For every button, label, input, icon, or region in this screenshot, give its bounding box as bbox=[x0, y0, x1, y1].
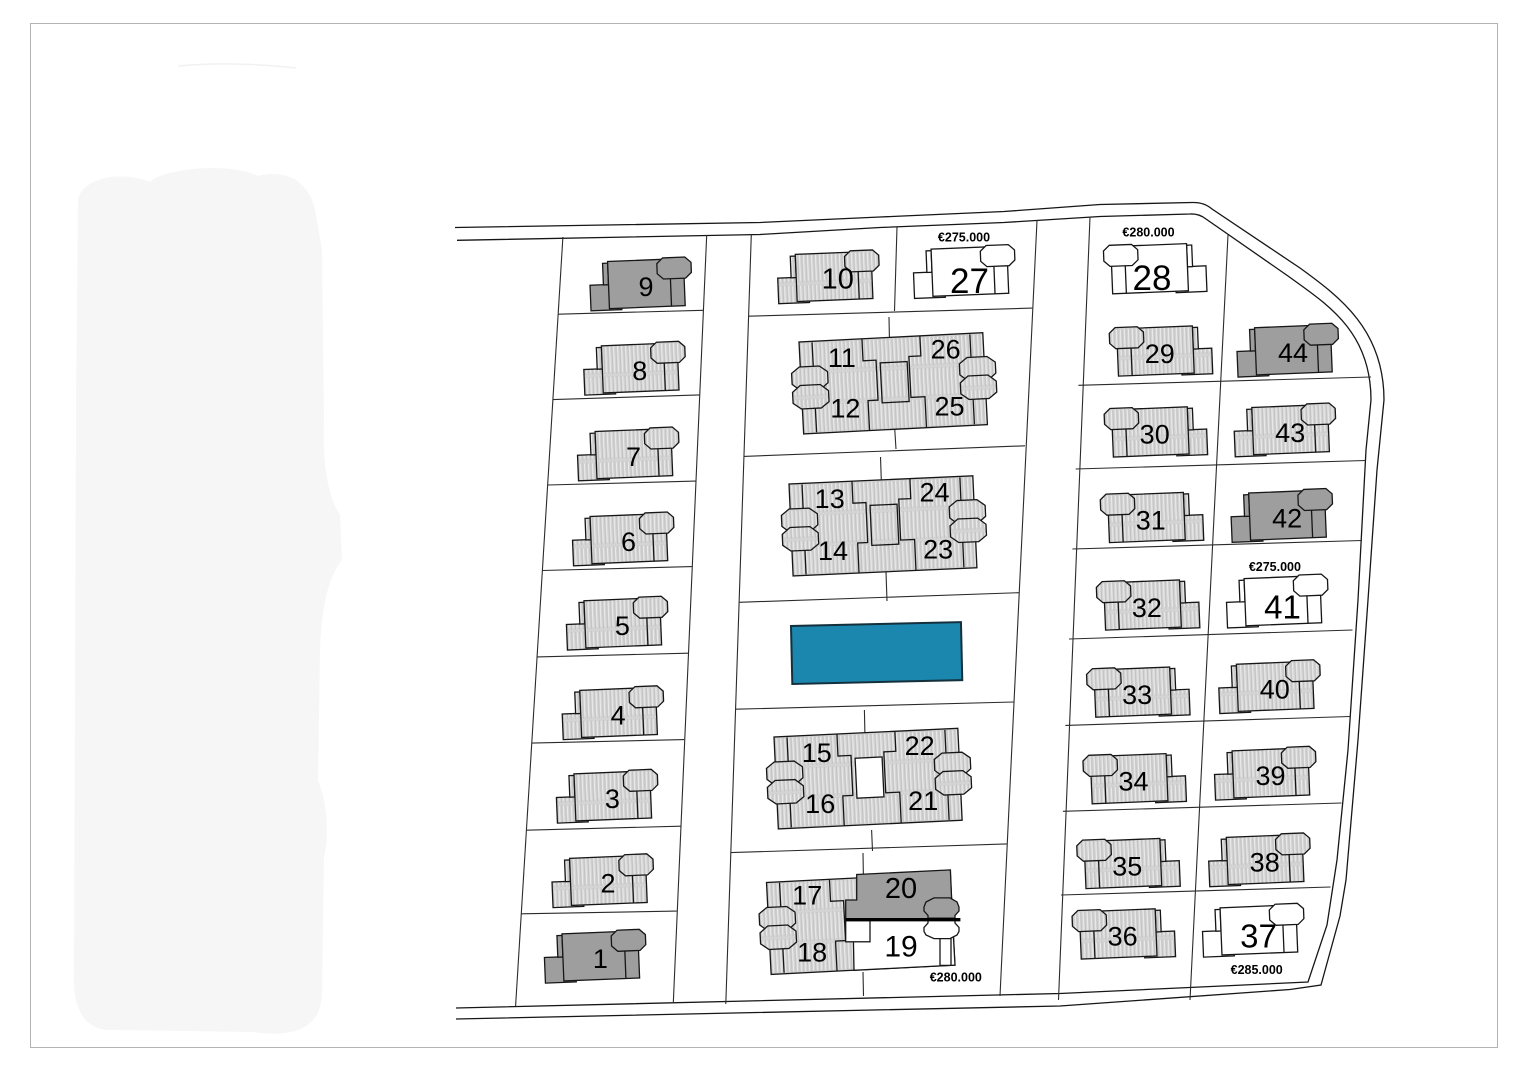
svg-text:22: 22 bbox=[905, 731, 935, 761]
svg-text:15: 15 bbox=[802, 738, 832, 768]
svg-text:16: 16 bbox=[805, 789, 835, 819]
svg-text:€275.000: €275.000 bbox=[938, 231, 990, 245]
svg-text:38: 38 bbox=[1250, 848, 1280, 878]
svg-text:39: 39 bbox=[1255, 761, 1285, 791]
svg-text:42: 42 bbox=[1272, 503, 1302, 533]
svg-text:€275.000: €275.000 bbox=[1249, 560, 1301, 574]
svg-text:12: 12 bbox=[830, 394, 860, 424]
svg-text:29: 29 bbox=[1145, 339, 1175, 369]
svg-text:20: 20 bbox=[885, 873, 917, 905]
svg-text:10: 10 bbox=[822, 264, 854, 296]
svg-text:18: 18 bbox=[797, 937, 827, 967]
svg-text:8: 8 bbox=[632, 356, 647, 386]
svg-text:24: 24 bbox=[919, 478, 949, 508]
svg-text:14: 14 bbox=[818, 536, 848, 566]
svg-text:26: 26 bbox=[931, 335, 961, 365]
svg-text:9: 9 bbox=[638, 272, 653, 302]
svg-text:36: 36 bbox=[1108, 922, 1138, 952]
svg-text:17: 17 bbox=[792, 881, 822, 911]
svg-text:44: 44 bbox=[1278, 338, 1308, 368]
svg-text:3: 3 bbox=[605, 784, 620, 814]
svg-text:32: 32 bbox=[1132, 593, 1162, 623]
svg-text:€285.000: €285.000 bbox=[1231, 963, 1283, 977]
svg-text:5: 5 bbox=[615, 611, 630, 641]
svg-text:28: 28 bbox=[1133, 259, 1172, 298]
svg-text:40: 40 bbox=[1260, 675, 1290, 705]
svg-text:37: 37 bbox=[1240, 918, 1277, 955]
svg-text:21: 21 bbox=[908, 786, 938, 816]
svg-text:6: 6 bbox=[621, 527, 636, 557]
svg-text:23: 23 bbox=[923, 534, 953, 564]
svg-text:35: 35 bbox=[1112, 851, 1142, 881]
svg-text:41: 41 bbox=[1264, 588, 1301, 625]
svg-text:43: 43 bbox=[1275, 418, 1305, 448]
svg-text:13: 13 bbox=[815, 484, 845, 514]
svg-text:25: 25 bbox=[934, 392, 964, 422]
svg-text:34: 34 bbox=[1118, 767, 1148, 797]
svg-text:11: 11 bbox=[828, 343, 856, 373]
svg-text:7: 7 bbox=[626, 442, 641, 472]
svg-text:31: 31 bbox=[1136, 505, 1166, 535]
svg-text:€280.000: €280.000 bbox=[930, 971, 982, 985]
svg-text:33: 33 bbox=[1122, 680, 1152, 710]
svg-text:2: 2 bbox=[600, 869, 615, 899]
svg-text:27: 27 bbox=[950, 262, 989, 301]
svg-text:19: 19 bbox=[884, 931, 917, 964]
svg-text:4: 4 bbox=[611, 701, 626, 731]
svg-text:1: 1 bbox=[593, 944, 608, 974]
svg-text:30: 30 bbox=[1140, 420, 1170, 450]
svg-text:€280.000: €280.000 bbox=[1122, 226, 1174, 240]
